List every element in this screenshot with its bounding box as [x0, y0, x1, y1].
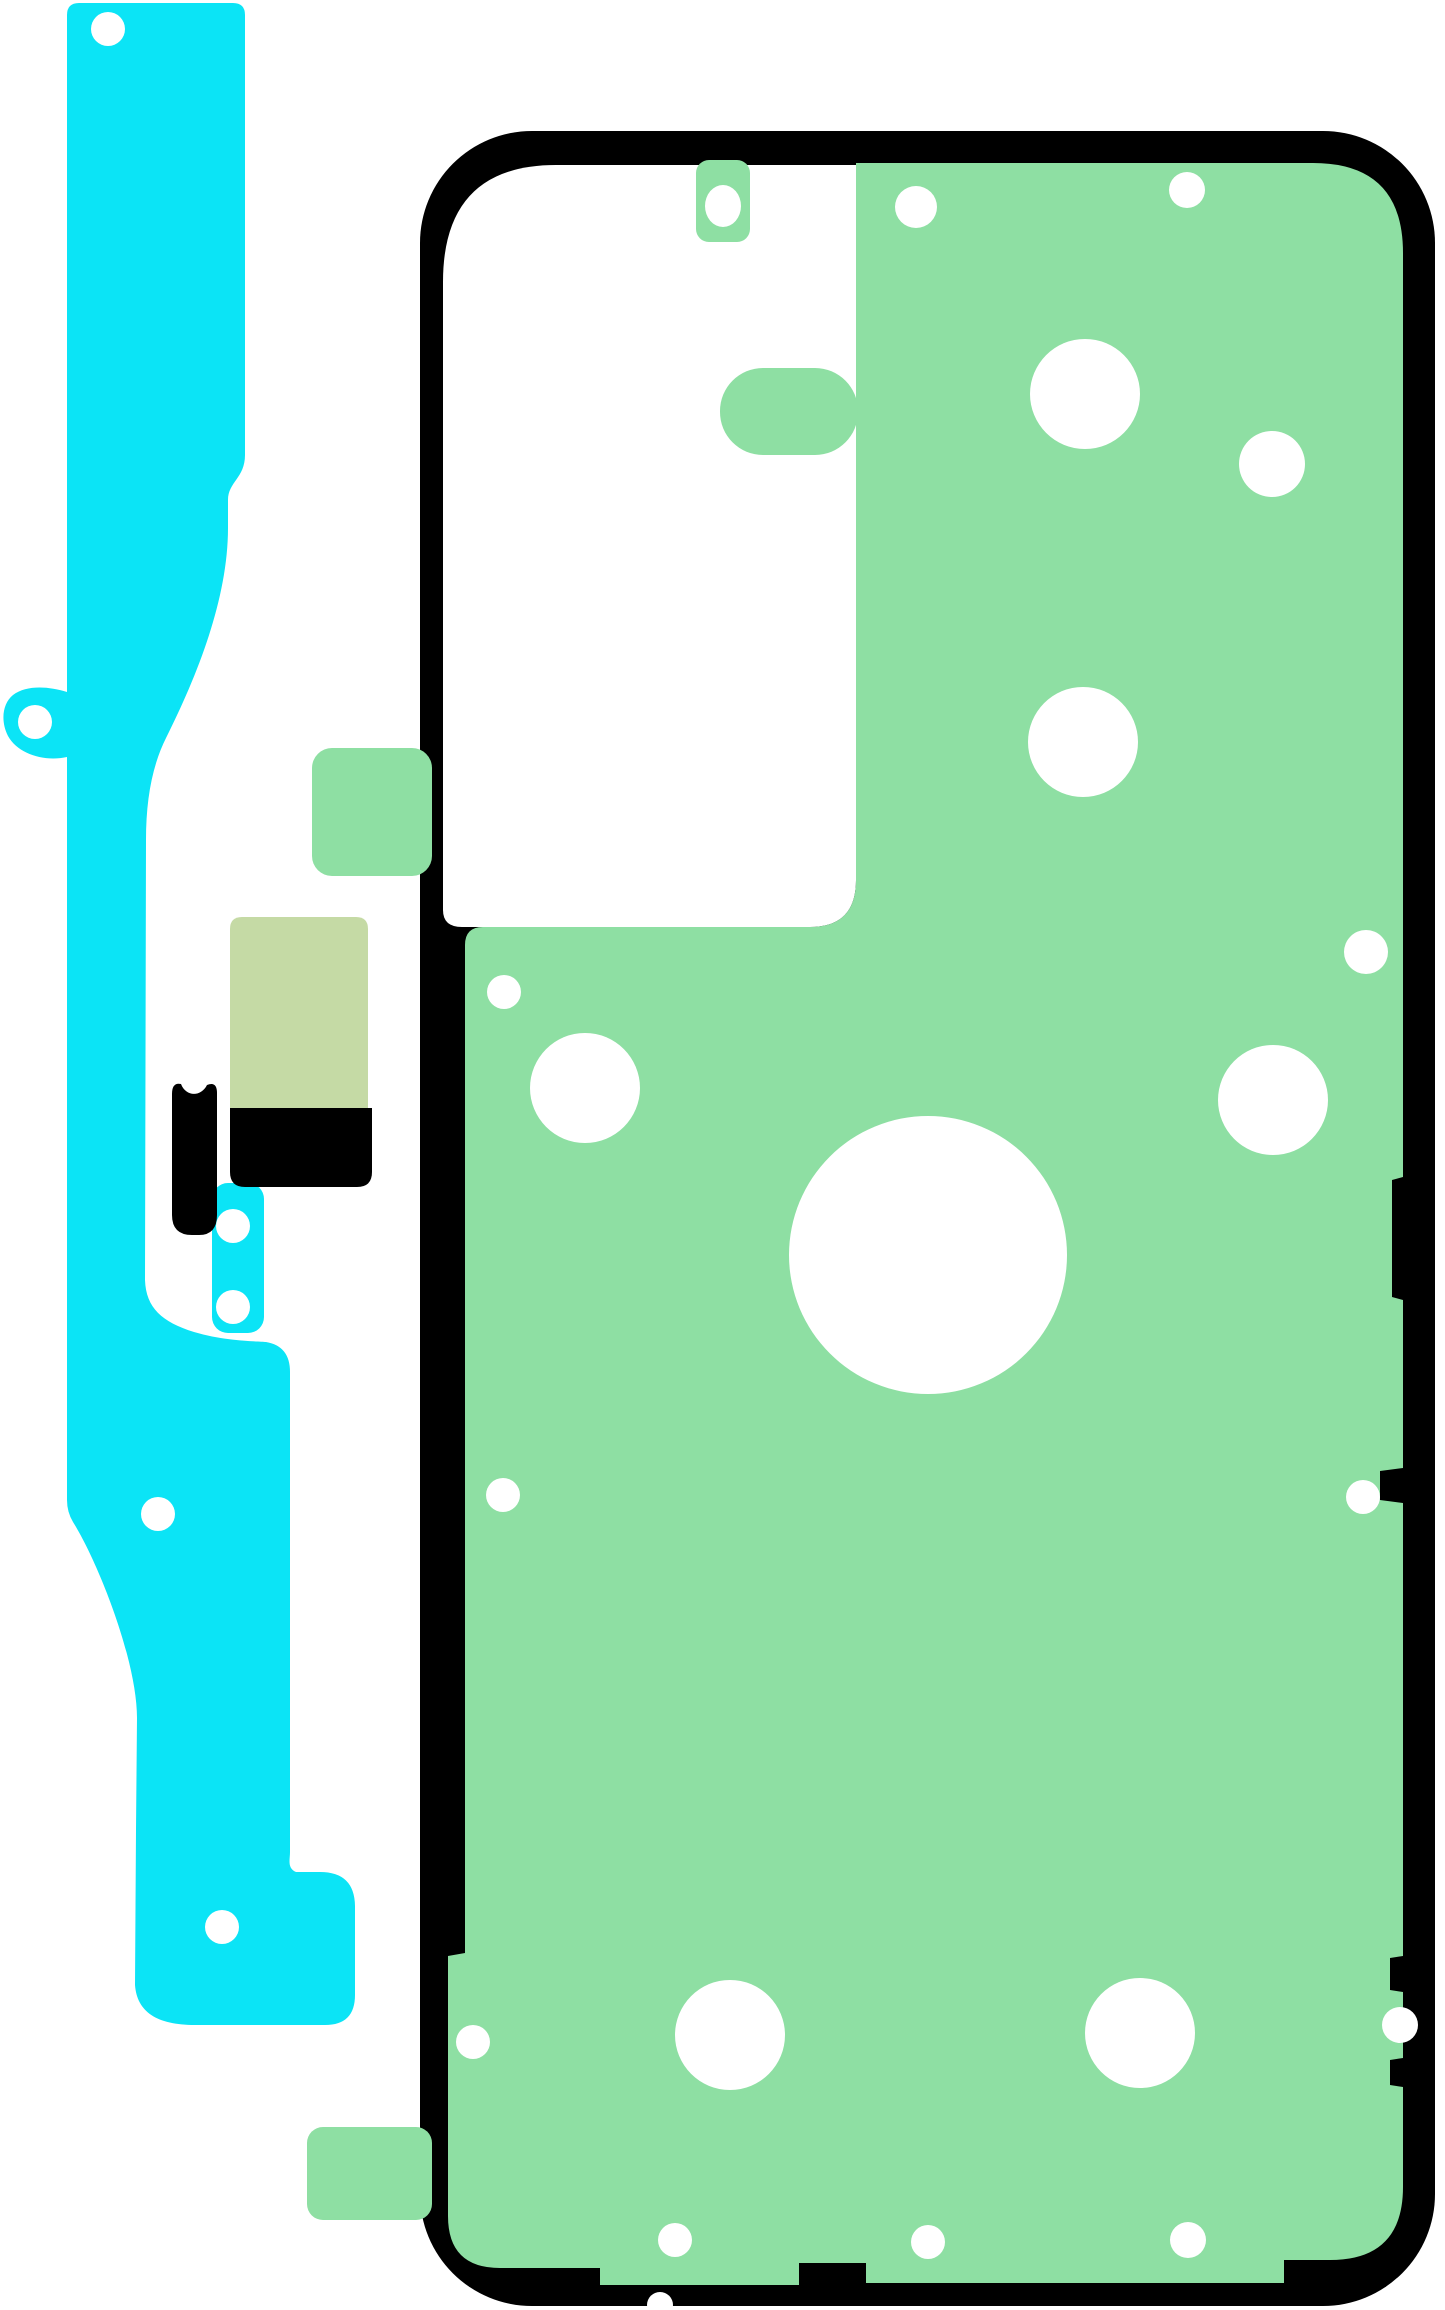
pad-backing	[230, 1108, 372, 1187]
punched-hole	[216, 1209, 250, 1243]
punched-hole	[675, 1980, 785, 2090]
punched-hole	[18, 705, 52, 739]
punched-hole	[1169, 172, 1205, 208]
punched-hole	[1239, 431, 1305, 497]
punched-hole	[658, 2223, 692, 2257]
sensor-pad	[230, 917, 368, 1108]
punched-hole	[216, 1290, 250, 1324]
flex-piece	[172, 1084, 217, 1235]
punched-hole	[789, 1116, 1067, 1394]
punched-hole	[141, 1497, 175, 1531]
punched-hole	[895, 186, 937, 228]
punched-hole	[1218, 1045, 1328, 1155]
camera-cutout	[443, 165, 856, 927]
kit-canvas	[0, 0, 1445, 2310]
punched-hole	[1030, 339, 1140, 449]
punched-hole	[1170, 2222, 1206, 2258]
punched-hole	[487, 975, 521, 1009]
tab-left-upper	[312, 748, 432, 876]
camera-finger	[720, 368, 858, 455]
adhesive-kit-illustration	[0, 0, 1445, 2310]
punched-hole	[1085, 1978, 1195, 2088]
punched-hole	[486, 1478, 520, 1512]
punched-hole	[1346, 1480, 1380, 1514]
punched-hole	[456, 2025, 490, 2059]
back-cover-sheet	[307, 131, 1435, 2310]
punched-hole	[1382, 2007, 1418, 2043]
punched-hole	[1344, 930, 1388, 974]
punched-hole	[1028, 687, 1138, 797]
punched-hole	[530, 1033, 640, 1143]
punched-hole	[205, 1910, 239, 1944]
punched-hole	[911, 2225, 945, 2259]
cyan-small-piece	[212, 1183, 264, 1333]
punched-hole	[91, 12, 125, 46]
notch-tab-hole	[705, 185, 741, 227]
tab-left-lower	[307, 2127, 432, 2220]
